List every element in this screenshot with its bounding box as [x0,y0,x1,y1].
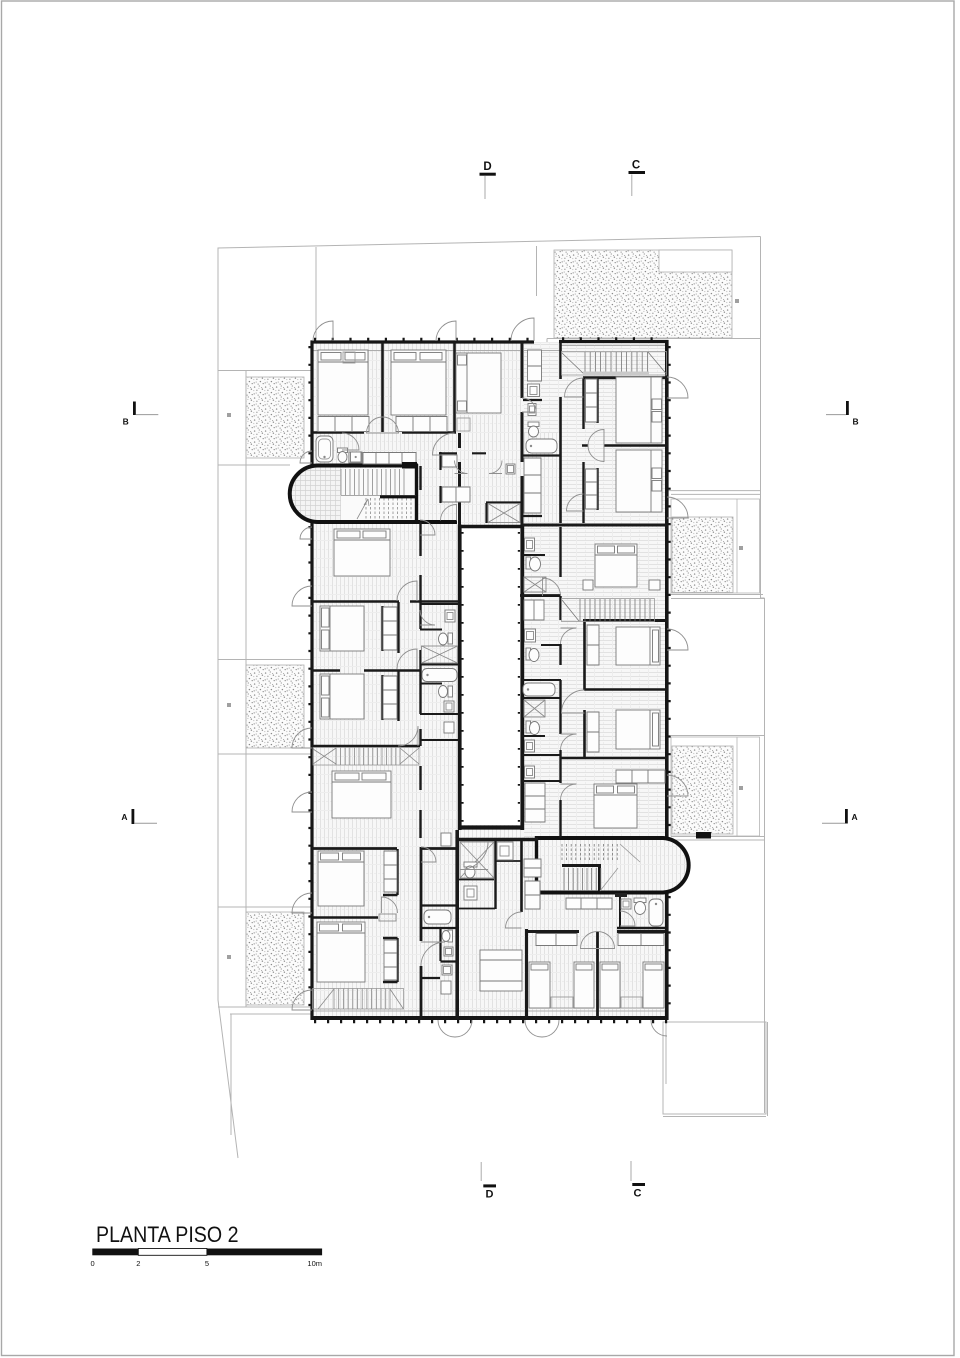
svg-text:PLANTA PISO 2: PLANTA PISO 2 [96,1222,239,1247]
svg-text:D: D [483,161,491,173]
svg-text:B: B [123,417,129,427]
svg-text:5: 5 [205,1259,209,1268]
svg-text:2: 2 [136,1259,140,1268]
svg-text:C: C [634,1188,642,1200]
svg-text:10m: 10m [307,1259,322,1268]
svg-text:A: A [121,812,127,822]
svg-text:C: C [632,160,640,172]
svg-text:A: A [852,812,858,822]
svg-text:D: D [486,1189,494,1201]
svg-text:0: 0 [91,1259,95,1268]
svg-text:B: B [853,417,859,427]
